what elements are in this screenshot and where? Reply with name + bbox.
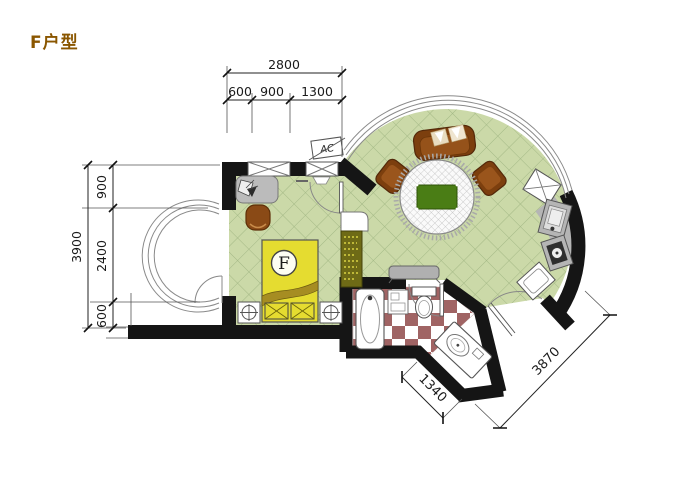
desk [236, 176, 278, 203]
dim-top-seg-1: 600 [228, 84, 252, 99]
nightstand-left [238, 302, 260, 323]
dim-left-total: 3900 [69, 231, 84, 263]
dim-top-seg-2: 900 [260, 84, 284, 99]
desk-chair [246, 205, 270, 230]
nightstand-right [320, 302, 342, 323]
dim-left-seg-1: 900 [94, 175, 109, 199]
floor-plan-page: F户型 [0, 0, 692, 497]
bay-window [142, 200, 219, 312]
dim-top-total: 2800 [268, 57, 300, 72]
dim-top-seg-3: 1300 [301, 84, 333, 99]
bed: F [262, 240, 318, 322]
bathtub [356, 289, 384, 349]
washer-unit [388, 290, 408, 314]
dim-left-seg-2: 2400 [94, 240, 109, 272]
dim-facade-width: 3870 [530, 344, 564, 378]
dim-left-seg-3: 600 [94, 304, 109, 328]
bed-marker-label: F [278, 254, 290, 274]
ac-unit-symbol: AC [309, 137, 345, 160]
floor-plan-svg: F [0, 0, 692, 497]
table-runner [417, 185, 457, 209]
